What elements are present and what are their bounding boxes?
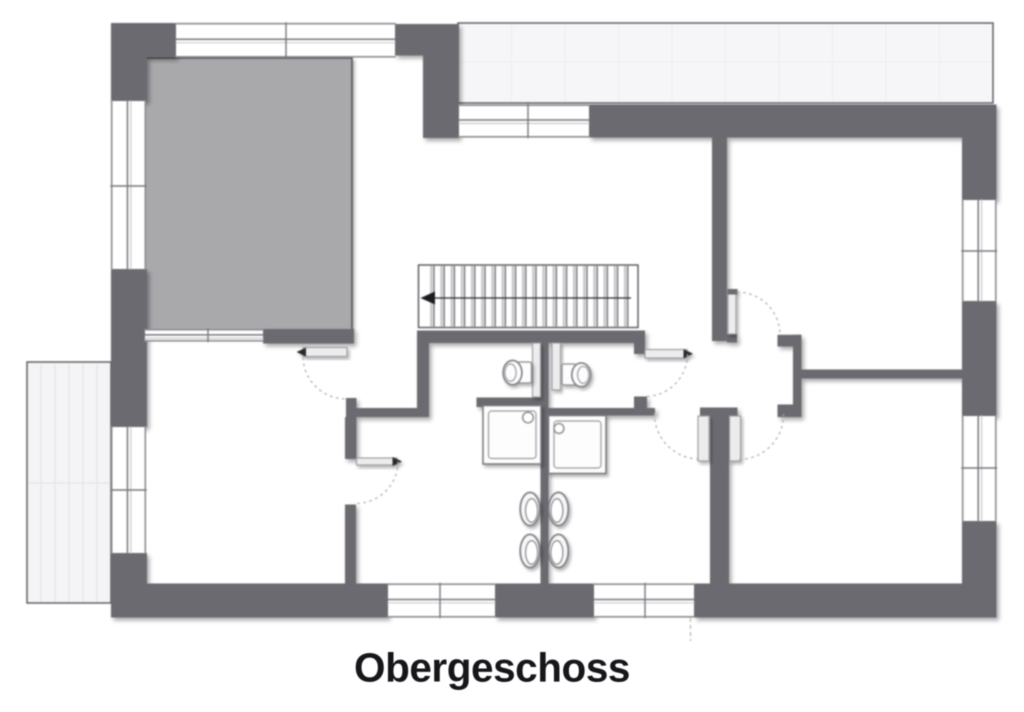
svg-text:Obergeschoss: Obergeschoss — [354, 645, 630, 691]
